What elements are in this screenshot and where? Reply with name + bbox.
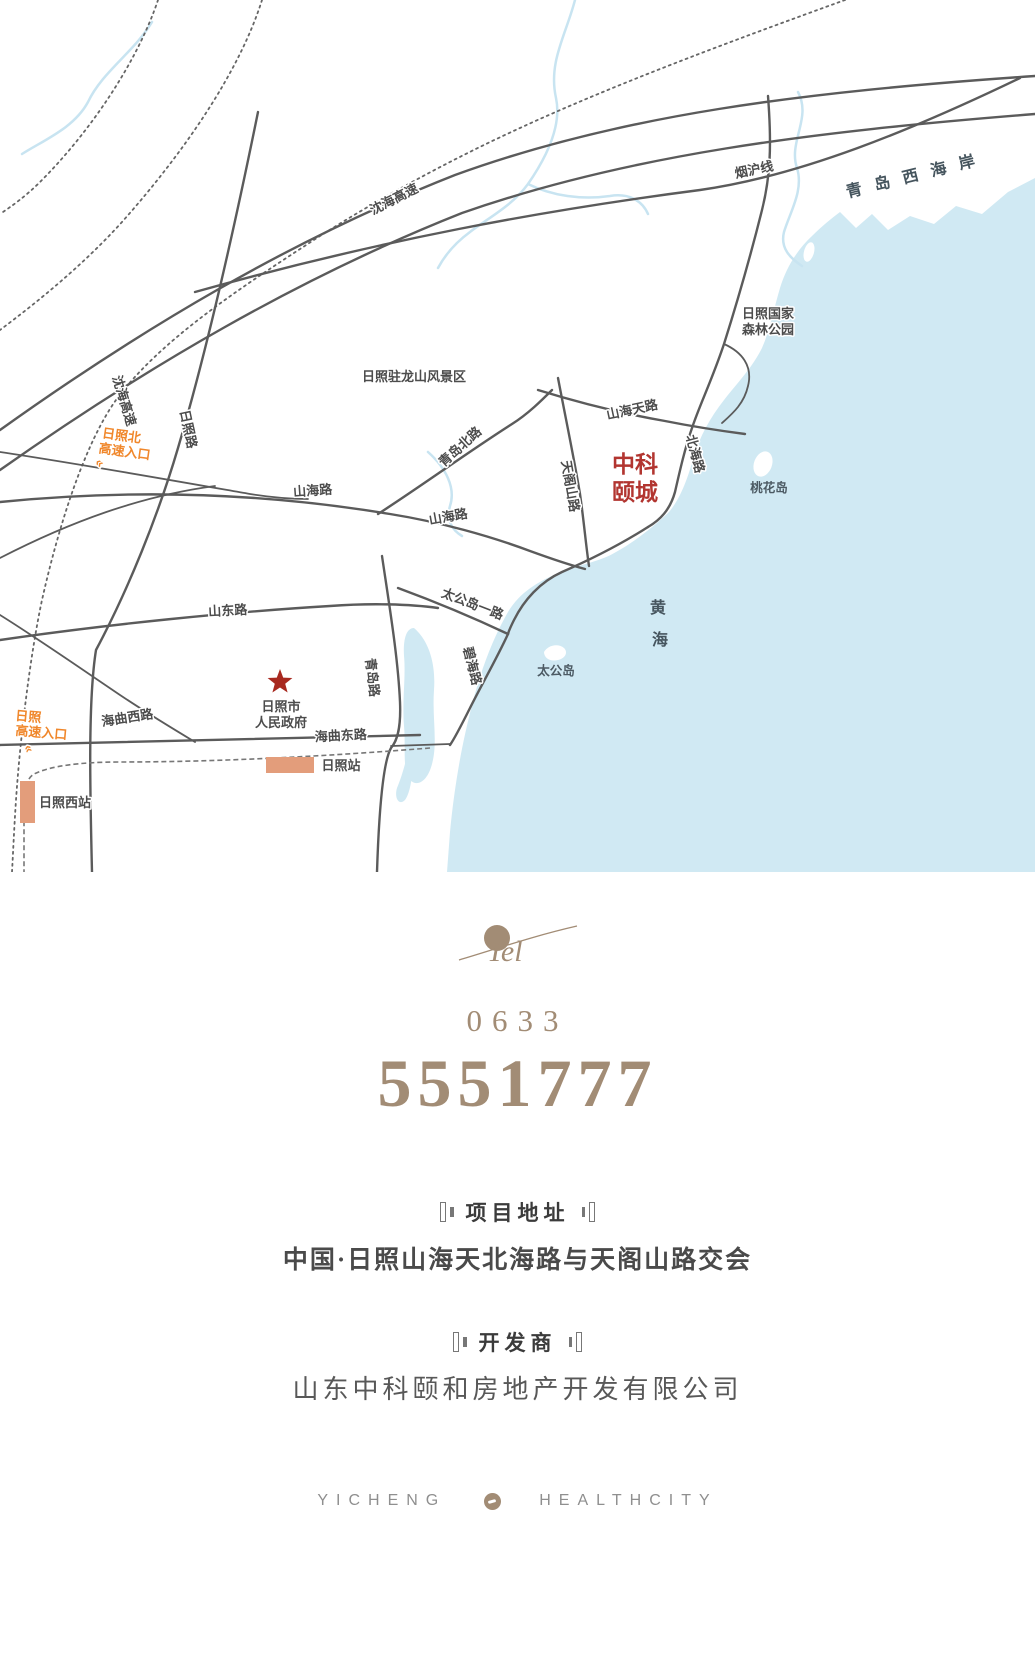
poster-page: 烟沪线 青岛西海岸 沈海高速 沈海高速 日照路 日照北 高速入口 « 日照驻龙山… xyxy=(0,0,1035,1653)
footer-brand: YICHENG HEALTHCITY xyxy=(0,1492,1035,1510)
shanhai-road-line xyxy=(0,494,585,569)
river-3 xyxy=(22,22,152,154)
label-bihai-road: 碧海路 xyxy=(460,644,484,687)
label-forest-park-line1: 日照国家 xyxy=(742,306,795,321)
ornament-bar-icon xyxy=(463,1337,467,1347)
ornament-bar-icon xyxy=(450,1207,454,1217)
heading-ornament-left xyxy=(440,1202,454,1222)
developer-name: 山东中科颐和房地产开发有限公司 xyxy=(0,1369,1035,1406)
label-taohua-island: 桃花岛 xyxy=(750,480,788,495)
ornament-bar-icon xyxy=(576,1332,582,1352)
tel-ornament: Tel xyxy=(0,916,1035,972)
footer-left-text: YICHENG xyxy=(317,1492,446,1510)
label-taigong-island: 太公岛 xyxy=(537,663,575,678)
ornament-bar-icon xyxy=(440,1202,446,1222)
label-yellow-sea-line2: 海 xyxy=(652,630,668,649)
heading-ornament-right xyxy=(582,1202,596,1222)
river-2 xyxy=(783,92,802,266)
label-tiangeshan-road: 天阁山路 xyxy=(559,459,583,514)
ornament-bar-icon xyxy=(453,1332,459,1352)
label-rizhao-road: 日照路 xyxy=(177,408,200,450)
entrance-connector xyxy=(0,452,308,499)
label-shanhai-road-west: 山海路 xyxy=(293,482,334,500)
railway-line xyxy=(24,748,430,872)
phone-number: 5551777 xyxy=(0,1044,1035,1123)
label-qingdao-road: 青岛路 xyxy=(363,657,383,699)
label-shenhai-expwy-top: 沈海高速 xyxy=(367,181,420,218)
project-name-line2: 颐城 xyxy=(612,479,658,505)
label-qingdao-west-coast: 青岛西海岸 xyxy=(844,148,989,202)
developer-heading-text: 开发商 xyxy=(479,1327,557,1357)
river-1 xyxy=(438,0,575,268)
label-rizhao-west-station: 日照西站 xyxy=(39,795,91,810)
project-name-line1: 中科 xyxy=(612,451,658,477)
heading-ornament-right xyxy=(569,1332,583,1352)
location-map: 烟沪线 青岛西海岸 沈海高速 沈海高速 日照路 日照北 高速入口 « 日照驻龙山… xyxy=(0,0,1035,872)
footer-right-text: HEALTHCITY xyxy=(539,1492,717,1510)
government-star xyxy=(268,669,293,693)
area-code: 0633 xyxy=(0,1003,1035,1039)
label-zhulongshan-scenic: 日照驻龙山风景区 xyxy=(362,369,466,384)
label-rizhao-station: 日照站 xyxy=(321,758,360,773)
label-shanhai-road-east: 山海路 xyxy=(428,506,470,528)
brand-seal-icon xyxy=(484,1493,501,1510)
yellow-sea-shape xyxy=(447,178,1035,872)
lagoon-tail xyxy=(396,742,413,802)
ornament-bar-icon xyxy=(569,1337,573,1347)
label-haiqu-east-road: 海曲东路 xyxy=(314,727,368,745)
qingdao-road-stub xyxy=(391,744,450,746)
label-haiqu-west-road: 海曲西路 xyxy=(100,706,155,729)
tel-script-text: Tel xyxy=(487,935,523,968)
corner-arc-1 xyxy=(0,0,158,214)
project-address: 中国·日照山海天北海路与天阁山路交会 xyxy=(0,1240,1035,1276)
label-government-line2: 人民政府 xyxy=(255,715,307,730)
west-connector xyxy=(0,486,215,558)
rizhao-station-rect xyxy=(266,757,314,773)
rizhao-road-line xyxy=(90,112,258,872)
label-yellow-sea-line1: 黄 xyxy=(650,598,666,617)
ornament-bar-icon xyxy=(589,1202,595,1222)
label-rizhao-entrance-line2: 高速入口 xyxy=(15,723,68,742)
tel-script-icon: Tel xyxy=(453,916,583,972)
label-government-line1: 日照市 xyxy=(261,699,300,714)
developer-section-heading: 开发商 xyxy=(0,1327,1035,1357)
label-shandong-road: 山东路 xyxy=(208,602,249,619)
ornament-bar-icon xyxy=(582,1207,586,1217)
heading-ornament-left xyxy=(453,1332,467,1352)
rizhao-west-station-rect xyxy=(20,781,35,823)
address-section-heading: 项目地址 xyxy=(0,1197,1035,1227)
address-heading-text: 项目地址 xyxy=(466,1197,570,1227)
label-forest-park-line2: 森林公园 xyxy=(742,322,794,337)
